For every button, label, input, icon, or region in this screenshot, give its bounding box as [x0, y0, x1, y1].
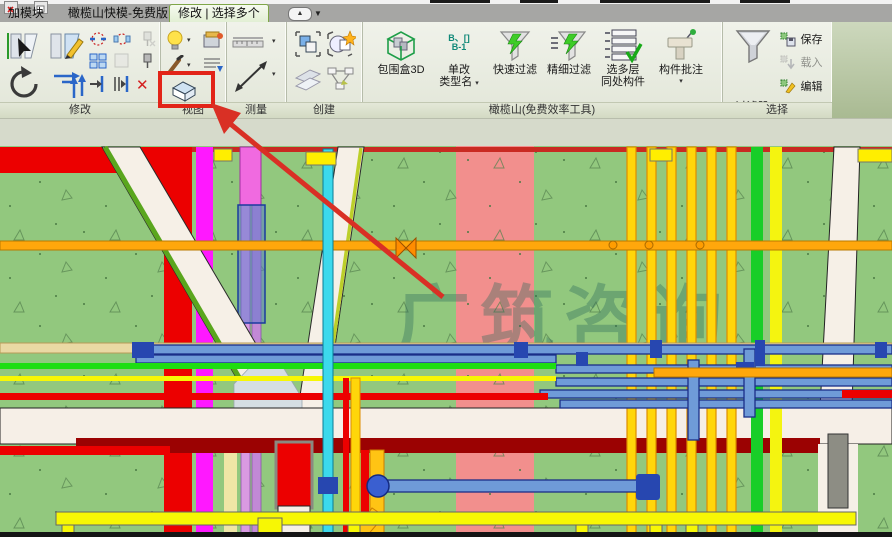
save-selection-button[interactable]: 保存: [780, 31, 822, 52]
panel-view: ▾ ▾: [160, 22, 227, 118]
render-box-icon[interactable]: [202, 30, 224, 55]
linework-brush-icon[interactable]: [165, 55, 185, 80]
measure-ruler-icon[interactable]: [231, 34, 267, 53]
column-red: [276, 442, 312, 508]
unpin-icon[interactable]: [138, 30, 156, 53]
ribbon-collapse-caret[interactable]: ▼: [314, 9, 322, 18]
pipe-orange-horizontal: [0, 241, 892, 250]
ribbon: ✕ 修改 ▾: [0, 22, 892, 118]
measure-dropdown[interactable]: ▾: [272, 37, 276, 45]
pipe-brightgreen-line: [0, 363, 556, 369]
save-label: 保存: [800, 34, 822, 46]
brush-dropdown[interactable]: ▾: [187, 61, 191, 69]
fine-filter-button[interactable]: 精细过滤: [542, 28, 596, 76]
pipe-cyan-fitting: [318, 477, 338, 494]
panel-label-selection: 选择: [722, 102, 832, 118]
tab-add-module[interactable]: 加模块: [0, 4, 52, 22]
drawing-viewport[interactable]: 广筑咨询: [0, 146, 892, 537]
panel-selection: 过滤器 保存 载入: [722, 22, 833, 118]
delete-icon[interactable]: ✕: [136, 78, 149, 93]
create-assembly-icon[interactable]: [326, 30, 356, 63]
pipe-yellow-line: [0, 376, 556, 381]
titlebar-text-remnant: [520, 0, 558, 3]
load-label: 载入: [800, 57, 822, 69]
cope-icon[interactable]: [88, 30, 108, 53]
pipe-elbow-blue: [367, 475, 389, 497]
options-bar: [0, 118, 892, 149]
button-label: 类型名 ▾: [439, 76, 479, 90]
pin-icon[interactable]: [140, 52, 156, 75]
quick-filter-button[interactable]: 快速过滤: [488, 28, 542, 76]
panel-label-olive: 橄榄山(免费效率工具): [362, 102, 722, 118]
pipe-orange-right: [654, 368, 892, 377]
filter-icon: [734, 28, 772, 64]
button-label: 单改: [448, 64, 470, 76]
panel-modify: ✕ 修改: [0, 22, 161, 118]
ribbon-tab-bar: 加模块 橄榄山快模-免费版 修改 | 选择多个 ▲ ▼: [0, 4, 892, 22]
rename-type-icon: B、[] B-1: [448, 28, 470, 64]
pipe-magenta-vertical: [196, 147, 213, 537]
select-boundary-icon[interactable]: [5, 29, 43, 70]
view-bottom-edge: [0, 532, 892, 537]
panel-measure: ▾ ▾ 测量: [226, 22, 287, 118]
pipe-blue-lower: [383, 480, 645, 492]
filter-button[interactable]: [730, 28, 776, 69]
button-label: 同处构件: [601, 76, 645, 88]
pipe-fitting-dot: [696, 241, 704, 249]
aligned-dimension-icon[interactable]: [232, 56, 270, 101]
pipe-red-line: [0, 393, 548, 400]
split-align-icon[interactable]: [112, 74, 132, 99]
edit-selection-icon: [780, 79, 796, 94]
cut-geometry-icon[interactable]: [112, 30, 132, 53]
tray-yellow-bottom: [56, 512, 856, 525]
pipe-fitting-dot: [609, 241, 617, 249]
pipe-fitting-dot: [645, 241, 653, 249]
lightbulb-icon[interactable]: [165, 30, 185, 55]
plan-view-canvas: 广筑咨询: [0, 146, 892, 537]
button-label: 快速过滤: [493, 64, 537, 76]
pipe-yellow-vertical: [770, 147, 782, 537]
button-label: 构件批注: [659, 64, 703, 76]
duct-red-left-band: [0, 446, 170, 455]
button-label: 精细过滤: [547, 64, 591, 76]
create-diagram-icon[interactable]: [326, 66, 356, 97]
tab-modify-select-multiple[interactable]: 修改 | 选择多个: [169, 4, 269, 22]
save-selection-icon: [780, 32, 796, 47]
ribbon-empty-area: [832, 22, 892, 118]
create-group-icon[interactable]: [294, 30, 322, 63]
component-annotate-button[interactable]: 构件批注 ▾: [654, 28, 708, 88]
pattern-grid-icon[interactable]: [88, 52, 108, 75]
edit-label: 编辑: [800, 81, 822, 93]
panel-label-view: 视图: [160, 102, 226, 118]
create-parts-icon[interactable]: [294, 66, 322, 97]
column-gray-block: [828, 434, 848, 508]
panel-label-create: 创建: [286, 102, 362, 118]
application-window: 加模块 橄榄山快模-免费版 修改 | 选择多个 ▲ ▼: [0, 0, 892, 537]
titlebar-text-remnant: [430, 0, 490, 3]
panel-olive: 包围盒3D B、[] B-1 单改 类型名 ▾ 快速过滤: [362, 22, 723, 118]
bounding-box-3d-icon: [381, 28, 421, 64]
pipe-red-right: [842, 390, 892, 398]
offset-icon[interactable]: [50, 66, 88, 107]
panel-label-modify: 修改: [0, 102, 160, 118]
rotate-icon[interactable]: [7, 66, 43, 107]
gray-square-icon[interactable]: [112, 52, 132, 75]
lightbulb-dropdown[interactable]: ▾: [187, 36, 191, 44]
edit-selection-button[interactable]: 编辑: [780, 78, 822, 99]
fine-filter-icon: [549, 28, 589, 64]
load-selection-icon: [780, 55, 796, 70]
titlebar-text-remnant: [600, 0, 710, 3]
ribbon-collapse-button[interactable]: ▲: [288, 7, 312, 21]
rename-type-button[interactable]: B、[] B-1 单改 类型名 ▾: [432, 28, 486, 90]
pipe-elbow-fitting: [636, 474, 660, 500]
dimension-dropdown[interactable]: ▾: [272, 70, 276, 78]
multi-level-select-button[interactable]: 选多层 同处构件: [596, 28, 650, 88]
thin-lines-icon[interactable]: [202, 56, 224, 79]
panel-create: 创建: [286, 22, 363, 118]
panel-label-measure: 测量: [226, 102, 286, 118]
pipe-pink-top: [240, 147, 261, 205]
load-selection-button[interactable]: 载入: [780, 54, 822, 75]
pipe-sleeve-blue: [238, 205, 265, 323]
bounding-box-3d-button[interactable]: 包围盒3D: [374, 28, 428, 76]
button-label: 选多层: [607, 64, 640, 76]
tab-olive-quickmodel[interactable]: 橄榄山快模-免费版: [60, 4, 176, 22]
select-edit-icon[interactable]: [47, 29, 87, 70]
multi-level-select-icon: [603, 28, 643, 64]
quick-filter-icon: [497, 28, 533, 64]
button-label: 包围盒3D: [377, 64, 424, 76]
align-icon[interactable]: [88, 74, 108, 99]
titlebar-text-remnant: [740, 0, 790, 3]
annotate-dropdown[interactable]: ▾: [679, 76, 683, 88]
component-annotate-icon: [663, 28, 699, 64]
